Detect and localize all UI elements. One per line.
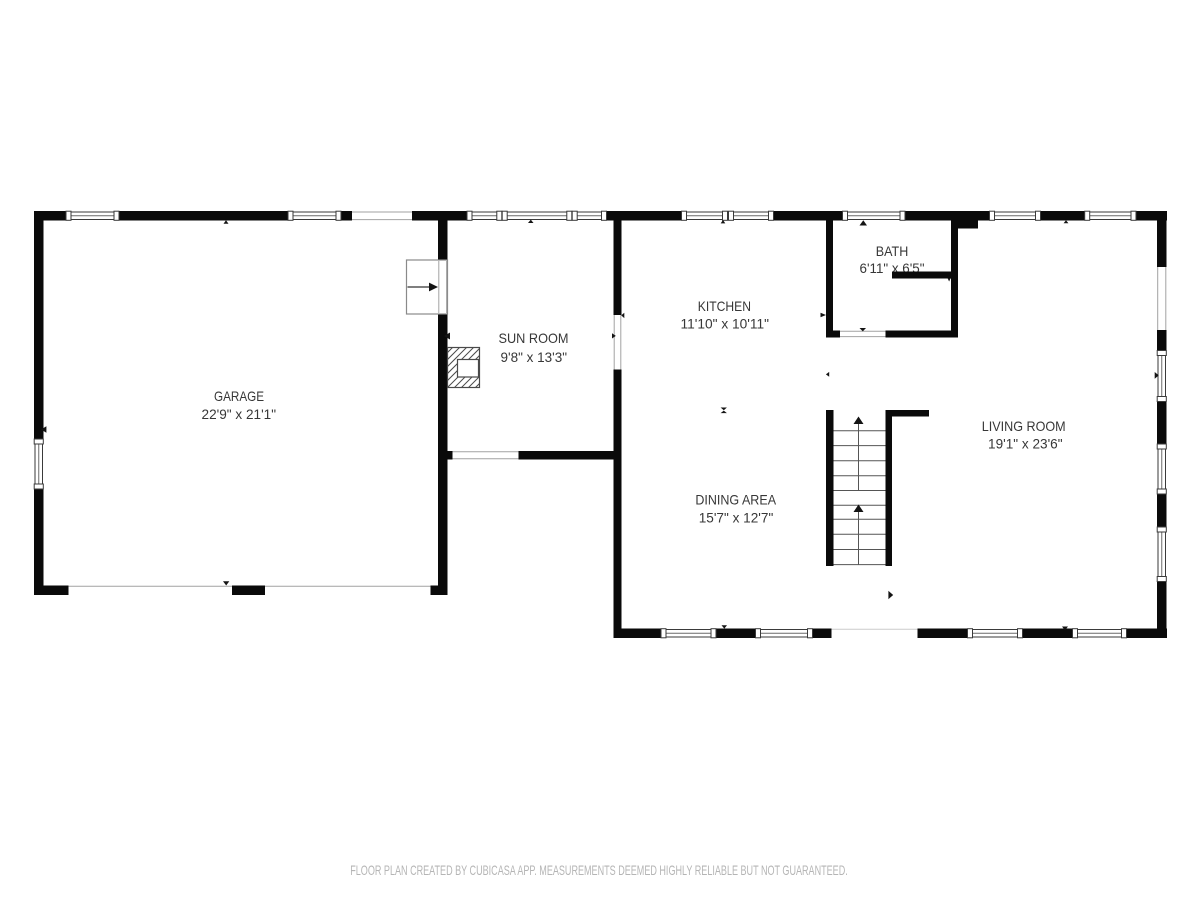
- svg-text:KITCHEN: KITCHEN: [698, 299, 751, 314]
- svg-text:FLOOR PLAN CREATED BY CUBICASA: FLOOR PLAN CREATED BY CUBICASA APP. MEAS…: [350, 862, 848, 878]
- svg-text:LIVING ROOM: LIVING ROOM: [982, 419, 1066, 434]
- svg-text:15'7" x 12'7": 15'7" x 12'7": [699, 511, 774, 526]
- svg-text:BATH: BATH: [876, 244, 909, 259]
- svg-text:SUN ROOM: SUN ROOM: [499, 331, 569, 346]
- svg-text:9'8" x 13'3": 9'8" x 13'3": [501, 350, 568, 365]
- svg-text:22'9" x 21'1": 22'9" x 21'1": [202, 407, 277, 422]
- svg-text:DINING AREA: DINING AREA: [695, 493, 776, 508]
- svg-text:11'10" x 10'11": 11'10" x 10'11": [681, 316, 770, 331]
- svg-text:GARAGE: GARAGE: [214, 389, 264, 404]
- svg-text:19'1" x 23'6": 19'1" x 23'6": [988, 437, 1063, 452]
